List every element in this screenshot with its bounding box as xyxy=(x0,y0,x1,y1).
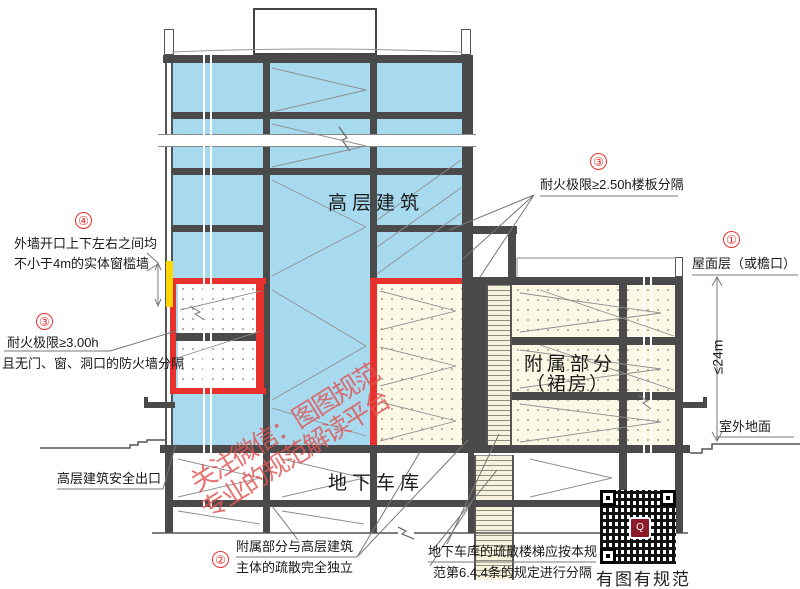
note2-number: ② xyxy=(212,551,229,568)
note1-number: ① xyxy=(723,231,740,248)
floor-slab xyxy=(172,225,263,232)
stair-bulkhead-wall xyxy=(508,234,516,278)
garage-label: 地下车库 xyxy=(328,468,424,495)
section-break-band xyxy=(158,134,476,147)
note4-line2: 不小于4m的实体窗槛墙 xyxy=(14,256,149,272)
basement-wall xyxy=(165,453,173,533)
floor-slab xyxy=(172,112,462,119)
outdoor-ground-label: 室外地面 xyxy=(719,419,771,435)
tower-label: 高层建筑 xyxy=(328,188,424,215)
roof-penthouse xyxy=(253,8,377,55)
note3-left-line1: 耐火极限≥3.00h xyxy=(7,335,99,351)
basement-wall xyxy=(675,453,683,533)
fire-wall-line-top-right xyxy=(370,278,467,284)
stair-bulkhead-slab xyxy=(467,226,517,234)
exit-label: 高层建筑安全出口 xyxy=(57,471,161,487)
canopy-edge xyxy=(703,397,707,408)
note3-left-line2: 且无门、窗、洞口的防火墙分隔 xyxy=(2,356,184,372)
note3-top-number: ③ xyxy=(590,153,607,170)
note2-line1: 附属部分与高层建筑 xyxy=(236,539,353,555)
podium-column xyxy=(619,285,627,445)
qr-finder-icon xyxy=(600,490,616,506)
fire-wall-line-top-left xyxy=(170,278,266,284)
podium-attached-bay xyxy=(377,284,462,445)
basement-column xyxy=(468,453,474,533)
fire-code-diagram: 高层建筑 附属部分 （裙房） 地下车库 ④ 外墙开口上下左右之间均 不小于4m的… xyxy=(0,0,800,589)
basement-stair-shaft xyxy=(474,455,514,580)
podium-roof-slab xyxy=(462,277,682,285)
podium-label-line2: （裙房） xyxy=(526,369,610,396)
qr-finder-icon xyxy=(660,490,676,506)
note3-top-text: 耐火极限≥2.50h楼板分隔 xyxy=(540,177,684,193)
floor-slab xyxy=(172,333,263,341)
note1-text: 屋面层（或檐口） xyxy=(692,256,796,272)
fire-wall-line-mid-vertical xyxy=(256,278,264,394)
note2-line2: 主体的疏散完全独立 xyxy=(236,560,353,576)
note4-number: ④ xyxy=(75,212,92,229)
podium-right-wall xyxy=(675,277,683,445)
note4-line1: 外墙开口上下左右之间均 xyxy=(14,236,157,252)
qr-center-logo: Q xyxy=(629,517,651,539)
garage-stair-note-line2: 范第6.4.4条的规定进行分隔 xyxy=(433,565,592,581)
qr-code: Q xyxy=(600,490,676,564)
note3-left-number: ③ xyxy=(36,313,53,330)
fire-wall-line-bottom-left xyxy=(170,388,266,394)
qr-caption: 有图有规范 xyxy=(596,565,691,589)
podium-parapet-right xyxy=(675,257,683,277)
tower-parapet-right xyxy=(461,29,471,55)
entrance-canopy-left xyxy=(146,402,175,408)
canopy-edge xyxy=(144,397,148,408)
window-sill-wall-highlight xyxy=(166,261,173,307)
garage-stair-note-line1: 地下车库的疏散楼梯应按本规 xyxy=(428,544,597,560)
height-dimension-label: ≤24m xyxy=(709,340,725,375)
stair-shaft-left-wall xyxy=(471,285,486,445)
podium-stair-shaft xyxy=(486,285,512,445)
floor-slab xyxy=(370,225,462,232)
qr-finder-icon xyxy=(600,548,616,564)
floor-slab xyxy=(172,168,462,175)
tower-parapet-left xyxy=(164,29,174,55)
